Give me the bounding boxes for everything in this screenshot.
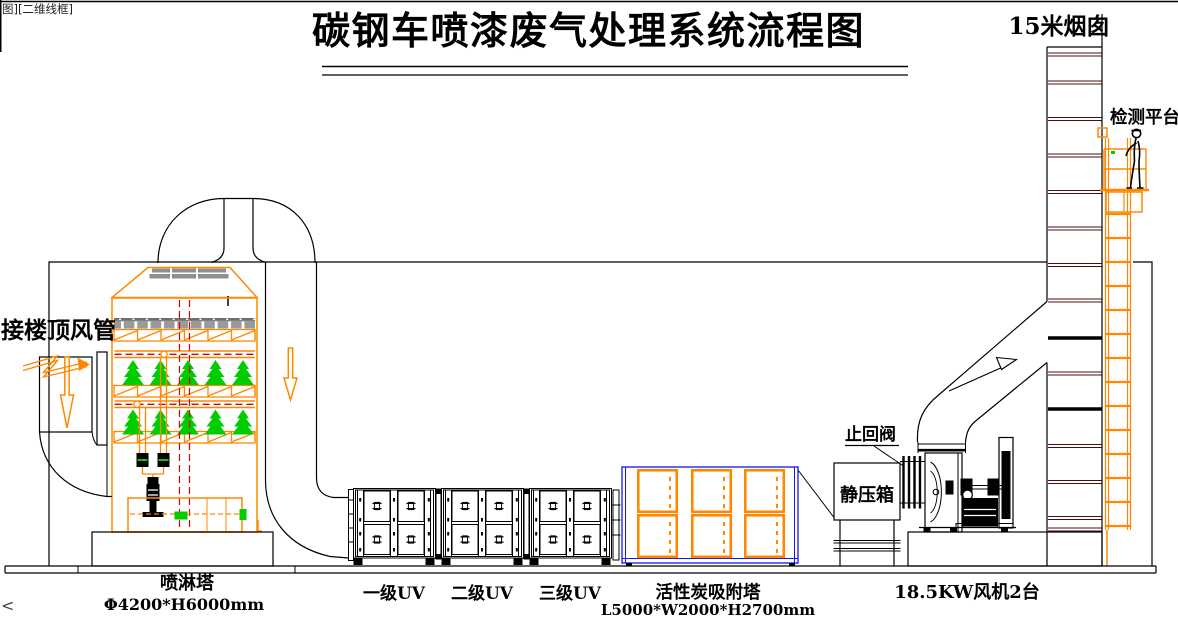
spray-tower-spec: Φ4200*H6000mm (104, 595, 264, 614)
chimney-label: 15米烟囱 (1008, 13, 1109, 40)
inspection-platform: 检测平台 (1098, 107, 1178, 212)
uv-stage2-label: 二级UV (451, 583, 514, 604)
spray-tower (78, 199, 354, 574)
packing-bed (114, 318, 255, 329)
fan-outlet-duct (917, 302, 1047, 443)
process-flow-diagram: 图][二维线框] 碳钢车喷漆废气处理系统流程图 静压箱 (0, 0, 1178, 621)
valve-icon (158, 453, 170, 467)
carbon-tower-spec: L5000*W2000*H2700mm (601, 601, 815, 619)
uv-stage1-label: 一级UV (363, 583, 426, 604)
fan-casing (925, 453, 962, 532)
fan-label: 18.5KW风机2台 (894, 581, 1040, 603)
check-valve (900, 456, 925, 509)
chimney-body (1047, 47, 1102, 566)
tower-foundation (92, 532, 273, 566)
tower-top-elbow (158, 199, 315, 264)
corner-mark: < (1, 596, 14, 615)
plenum-label: 静压箱 (840, 484, 894, 506)
downcomer-duct (266, 262, 350, 558)
fan-motor (962, 498, 998, 527)
check-valve-callout: 止回阀 (845, 424, 904, 466)
carbon-adsorption-tower (622, 467, 798, 567)
title-block: 碳钢车喷漆废气处理系统流程图 (312, 8, 908, 75)
roof-duct-label: 接楼顶风管 (1, 317, 116, 344)
duct-break-arrow-icon (23, 356, 90, 377)
uv-units (354, 489, 621, 566)
valve-icon (137, 453, 149, 467)
bearing-blocks (946, 479, 1000, 496)
equipment-labels: 喷淋塔 Φ4200*H6000mm 一级UV 二级UV 三级UV 活性炭吸附塔 … (104, 572, 1040, 619)
check-valve-label: 止回阀 (845, 424, 896, 445)
flow-arrow-down-icon (284, 348, 297, 400)
fan-assembly (918, 438, 1016, 533)
plenum-box: 静压箱 (798, 463, 901, 566)
uv-stage3-label: 三级UV (539, 583, 602, 604)
worker-figure (1126, 129, 1144, 188)
viewport-tag: 图][二维线框] (2, 2, 73, 16)
platform-label: 检测平台 (1110, 107, 1178, 128)
ground-line (5, 566, 1156, 573)
diagram-title: 碳钢车喷漆废气处理系统流程图 (312, 8, 865, 53)
spray-tower-label: 喷淋塔 (160, 572, 215, 594)
access-ladder (1106, 138, 1131, 566)
carbon-tower-label: 活性炭吸附塔 (656, 582, 761, 603)
inlet-duct: 接楼顶风管 (1, 317, 116, 497)
pump (143, 477, 164, 517)
